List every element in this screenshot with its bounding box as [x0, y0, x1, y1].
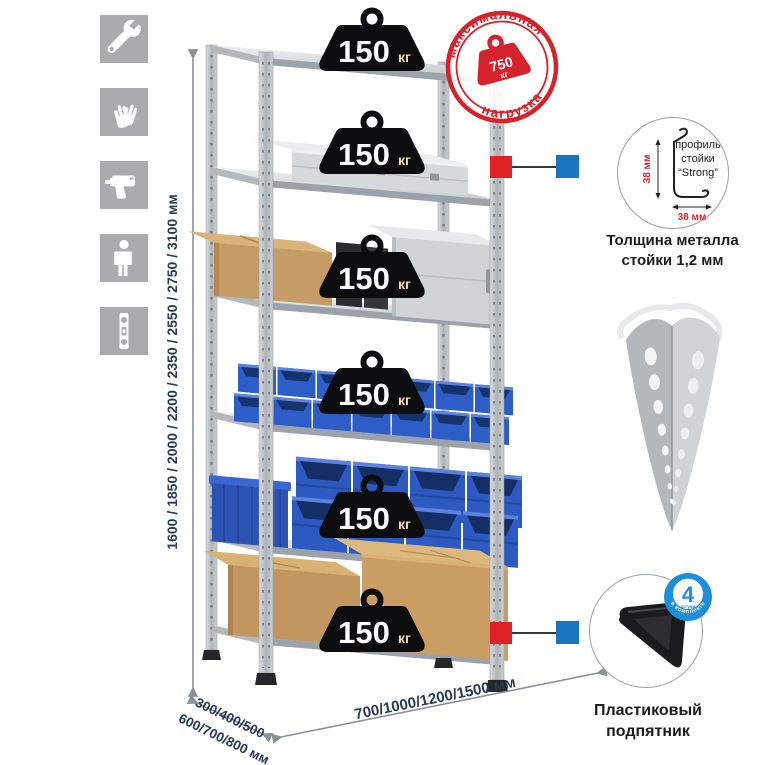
profile-caption-line2: стойки 1,2 мм [580, 251, 765, 271]
load-badge: 150кг [319, 114, 424, 175]
foot-caption: Пластиковый подпятник [568, 700, 728, 742]
foot-caption-line1: Пластиковый [568, 700, 728, 721]
load-unit: кг [398, 630, 411, 646]
profile-caption-line1: Толщина металла [580, 231, 765, 251]
plastic-foot [255, 673, 277, 685]
front-left-post [259, 52, 273, 673]
width-dimension: 700/1000/1200/1500 мм [281, 673, 598, 737]
load-badge: 150кг [319, 11, 424, 72]
foot-callout [490, 621, 579, 644]
profile-dim-vertical: 38 мм [642, 155, 653, 184]
profile-detail-circle: 38 мм 38 мм профиль стойки “Strong” [617, 117, 729, 229]
metal-upright-image [598, 298, 748, 543]
profile-dim-horizontal: 38 мм [678, 212, 707, 223]
load-unit: кг [398, 152, 411, 168]
load-value: 150 [338, 34, 390, 69]
callout-red-marker [490, 156, 512, 178]
kit-quantity-value: 4 [682, 582, 695, 607]
profile-cross-section: 38 мм 38 мм профиль стойки “Strong” [618, 118, 728, 228]
load-unit: кг [398, 276, 411, 292]
load-value: 150 [338, 137, 390, 172]
load-unit: кг [398, 49, 411, 65]
kit-quantity-badge: 4 штуки в комплекте [663, 572, 713, 622]
profile-callout [490, 155, 579, 178]
profile-label-3: “Strong” [678, 167, 718, 179]
load-unit: кг [398, 516, 411, 532]
height-dimension: 1600 / 1850 / 2000 / 2200 / 2350 / 2550 … [164, 58, 193, 688]
shelving-infographic: 1600 / 1850 / 2000 / 2200 / 2350 / 2550 … [0, 0, 765, 765]
callout-blue-marker [556, 155, 579, 178]
profile-caption: Толщина металла стойки 1,2 мм [580, 231, 765, 271]
load-value: 150 [338, 615, 390, 650]
load-value: 150 [338, 261, 390, 296]
callout-red-marker [490, 622, 512, 644]
load-badge: 150кг [319, 354, 424, 415]
callout-blue-marker [556, 621, 579, 644]
foot-caption-line2: подпятник [568, 721, 728, 742]
rear-left-post [206, 45, 217, 650]
plastic-foot [202, 650, 221, 660]
load-unit: кг [398, 392, 411, 408]
max-load-stamp: максимальная нагрузка 750 кг [434, 0, 568, 133]
load-value: 150 [338, 377, 390, 412]
load-value: 150 [338, 501, 390, 536]
profile-label-1: профиль [675, 139, 721, 151]
width-dimension-label: 700/1000/1200/1500 мм [353, 674, 517, 723]
plastic-foot [434, 658, 453, 668]
profile-label-2: стойки [681, 153, 715, 165]
height-dimension-label: 1600 / 1850 / 2000 / 2200 / 2350 / 2550 … [164, 194, 180, 549]
depth-dimension: 300/400/500 600/700/800 мм [176, 695, 271, 765]
